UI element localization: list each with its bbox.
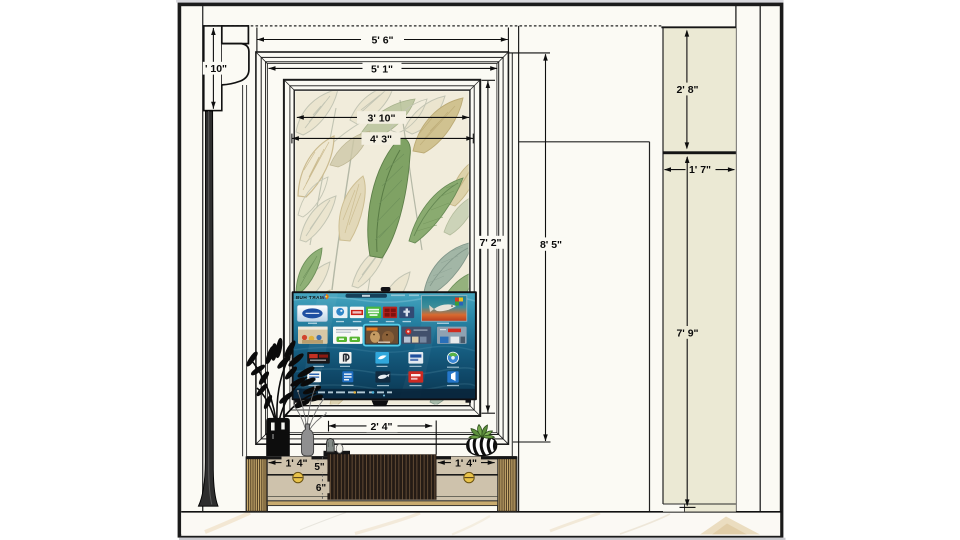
svg-text:2' 8": 2' 8" bbox=[676, 84, 698, 96]
svg-text:1' 7": 1' 7" bbox=[689, 164, 711, 176]
svg-text:4' 3": 4' 3" bbox=[370, 133, 392, 145]
svg-text:7' 2": 7' 2" bbox=[479, 237, 501, 249]
svg-text:1' 4": 1' 4" bbox=[455, 457, 477, 469]
svg-text:3' 10": 3' 10" bbox=[368, 112, 396, 124]
svg-text:7' 9": 7' 9" bbox=[676, 327, 698, 339]
svg-text:8' 5": 8' 5" bbox=[540, 239, 562, 251]
svg-text:5' 1": 5' 1" bbox=[371, 63, 393, 75]
svg-text:' 10": ' 10" bbox=[205, 63, 227, 75]
svg-text:5": 5" bbox=[314, 462, 325, 473]
svg-text:1' 4": 1' 4" bbox=[285, 457, 307, 469]
svg-text:SMART HUB: SMART HUB bbox=[295, 295, 328, 301]
svg-text:5' 6": 5' 6" bbox=[371, 34, 393, 46]
svg-text:6": 6" bbox=[316, 483, 327, 494]
svg-text:2' 4": 2' 4" bbox=[370, 421, 392, 433]
